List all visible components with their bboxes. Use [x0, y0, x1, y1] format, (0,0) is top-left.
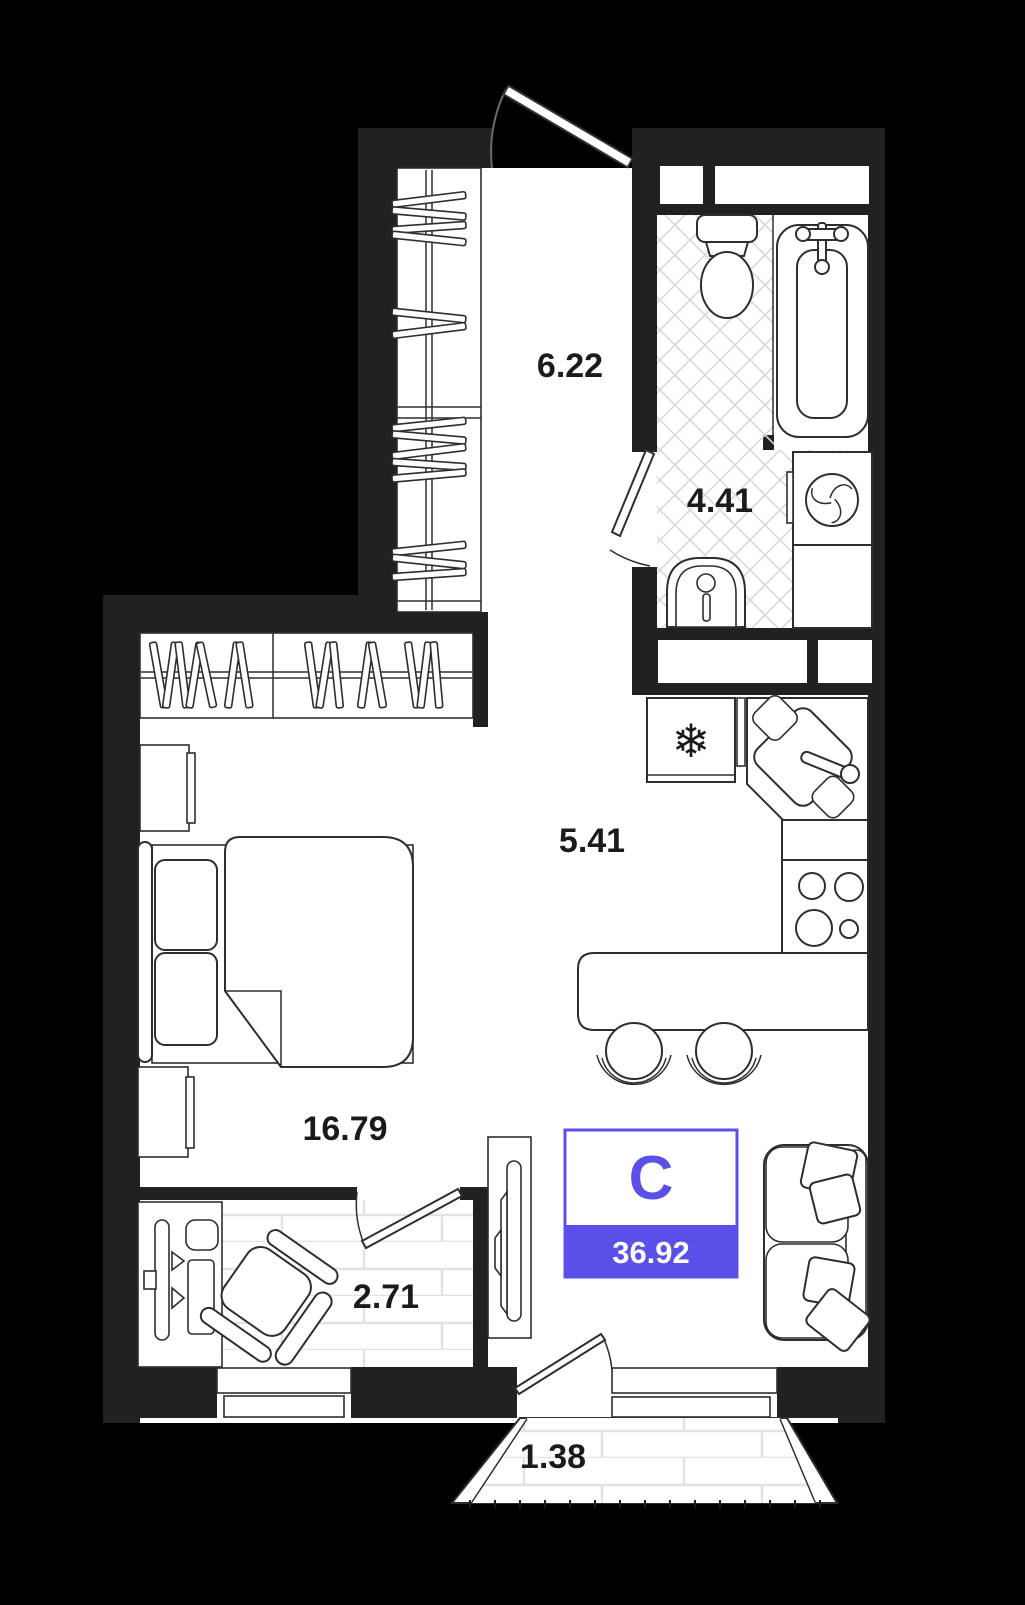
living-window-sill	[612, 1397, 770, 1417]
snowflake-icon: ❄	[672, 714, 711, 768]
desk	[138, 1202, 222, 1367]
corner-kitchen-sink	[747, 693, 868, 821]
floor-plan: ❄	[0, 0, 1025, 1605]
loggia-window	[217, 1368, 351, 1393]
kitchen-divider-panel	[737, 698, 745, 766]
washing-machine	[787, 452, 872, 628]
room-area-label-kitchen: 5.41	[559, 822, 625, 860]
nightstand	[138, 1067, 188, 1157]
unit-type-label: С	[629, 1144, 674, 1213]
headboard	[138, 842, 152, 1062]
bath-sink	[667, 558, 745, 627]
stove	[782, 860, 868, 953]
monitor	[155, 1220, 169, 1340]
floor-plan-canvas: ❄	[0, 0, 1025, 1605]
loggia-window-sill	[224, 1396, 344, 1417]
room-area-label-loggia: 2.71	[353, 1278, 419, 1316]
bed	[138, 837, 413, 1067]
kitchen-counter	[782, 820, 868, 860]
room-area-label-balcony: 1.38	[520, 1438, 586, 1476]
tv-stand	[488, 1137, 531, 1338]
nightstand	[140, 745, 189, 831]
sofa	[764, 1141, 872, 1353]
balcony	[452, 1418, 842, 1508]
bath-counter	[793, 545, 872, 628]
toilet	[697, 215, 757, 318]
refrigerator: ❄	[647, 698, 735, 782]
room-area-label-living: 16.79	[302, 1110, 387, 1148]
unit-badge[interactable]: С 36.92	[565, 1130, 737, 1277]
bathtub	[777, 223, 868, 437]
dining-table	[578, 953, 868, 1030]
unit-total-area: 36.92	[612, 1235, 690, 1270]
room-area-label-bathroom: 4.41	[687, 482, 753, 520]
living-window	[612, 1368, 777, 1393]
pillow	[809, 1173, 862, 1224]
pillow	[155, 860, 217, 950]
living-wardrobe	[140, 633, 473, 718]
hall-wardrobe	[392, 168, 481, 612]
pillow	[155, 953, 217, 1045]
room-area-label-hallway: 6.22	[537, 347, 603, 385]
